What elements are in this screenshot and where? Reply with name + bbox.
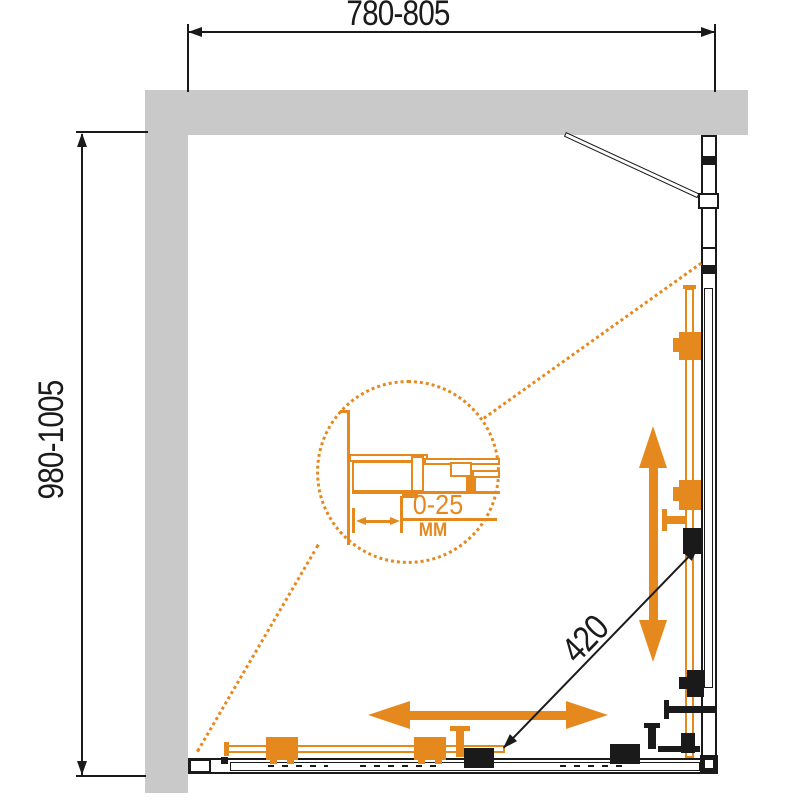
- bottom-door-roller-left-foot-1: [270, 760, 277, 764]
- left-wall: [145, 90, 188, 793]
- right-lower-roller: [687, 670, 704, 697]
- right-fixed-glass-panel: [704, 288, 713, 688]
- bottom-corner-handle: [648, 727, 656, 749]
- profile-notch: [450, 462, 472, 477]
- bottom-door-roller-left: [266, 737, 298, 760]
- bottom-corner-handle-cap: [644, 723, 660, 728]
- bottom-track-dashes-2: [360, 765, 440, 767]
- top-wall: [145, 90, 748, 135]
- adjustment-arrow-icon: [356, 516, 400, 526]
- profile-vertical-bar: [466, 477, 476, 492]
- right-support-bracket: [698, 193, 719, 209]
- depth-extension-line-top: [76, 131, 148, 133]
- width-arrow-left-icon: [188, 27, 202, 37]
- bottom-door-black-roller: [464, 748, 494, 768]
- right-profile-segment-1: [703, 156, 715, 165]
- right-door-roller-mid-arm: [673, 487, 679, 501]
- callout-leader-lower: [196, 544, 320, 753]
- right-bottom-bracket-bar: [668, 706, 716, 713]
- adjustment-tick-left: [352, 508, 355, 533]
- callout-leader-upper: [483, 262, 702, 419]
- bottom-left-wall-profile: [189, 759, 211, 773]
- adjustment-tick-right: [400, 496, 403, 533]
- width-dimension-label: 780-805: [339, 0, 458, 31]
- profile-wall-line: [347, 410, 350, 545]
- profile-right-lower-bar: [472, 470, 500, 478]
- depth-dimension-label: 980-1005: [35, 377, 69, 503]
- width-dimension-line: [188, 31, 715, 33]
- right-bottom-bracket-cap: [664, 700, 669, 719]
- right-door-roller-mid: [679, 480, 701, 510]
- bottom-door-roller-right-foot-1: [418, 760, 425, 764]
- right-profile-box-2: [701, 247, 717, 267]
- right-door-handle-arm: [666, 516, 686, 524]
- wall-support-bar: [564, 132, 700, 198]
- width-extension-line-left: [187, 24, 189, 92]
- bottom-door-roller-right-foot-2: [435, 760, 442, 764]
- depth-arrow-up-icon: [77, 133, 87, 147]
- bottom-corner-roller: [610, 744, 640, 764]
- profile-channel: [352, 461, 420, 492]
- bottom-door-roller-right: [414, 737, 446, 760]
- bottom-track-dashes-3: [560, 765, 630, 767]
- diagonal-dimension-label: 420: [546, 600, 624, 679]
- adjustment-range-label: 0-25: [407, 492, 470, 518]
- door-slide-arrow-vertical-icon: [639, 426, 667, 662]
- shower-enclosure-plan-drawing: 780-805 980-1005: [0, 0, 800, 800]
- profile-wall-tick: [340, 410, 350, 413]
- width-extension-line-right: [714, 24, 716, 92]
- bottom-door-rail-cap: [224, 742, 229, 756]
- right-door-rail-cap: [683, 285, 696, 289]
- bottom-track-dashes-1: [268, 765, 328, 767]
- depth-extension-line-bottom: [76, 775, 146, 777]
- depth-arrow-down-icon: [77, 761, 87, 775]
- bottom-door-roller-left-foot-2: [287, 760, 294, 764]
- right-door-roller-top-arm: [673, 338, 679, 352]
- bottom-track-hook: [221, 757, 228, 764]
- bottom-door-handle: [456, 730, 464, 757]
- corner-block-inset: [705, 760, 713, 768]
- adjustment-unit-label: MM: [411, 522, 456, 540]
- bottom-corner-bracket-bar: [658, 746, 700, 752]
- right-profile-segment-2: [703, 266, 715, 274]
- right-lower-roller-arm: [679, 677, 688, 689]
- right-door-roller-top: [679, 332, 701, 360]
- door-slide-arrow-horizontal-icon: [368, 701, 608, 729]
- width-arrow-right-icon: [701, 27, 715, 37]
- profile-divider: [411, 456, 424, 492]
- depth-dimension-line: [81, 134, 83, 775]
